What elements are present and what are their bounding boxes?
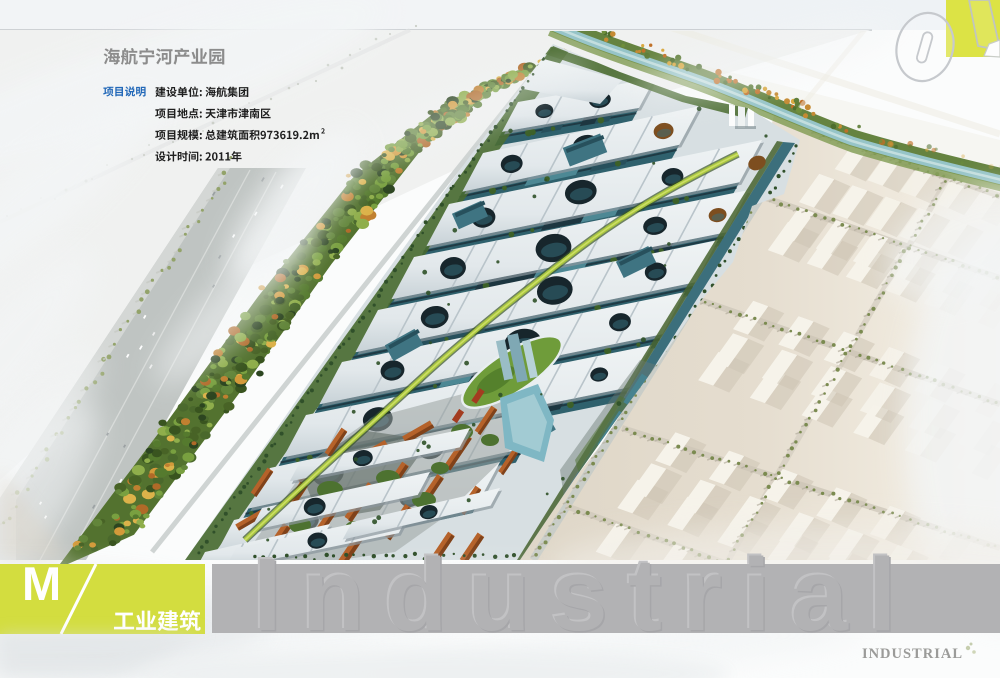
svg-text:INDUSTRIAL: INDUSTRIAL xyxy=(862,646,963,662)
svg-text:Industrial: Industrial xyxy=(253,537,917,652)
svg-text:M: M xyxy=(22,557,61,610)
